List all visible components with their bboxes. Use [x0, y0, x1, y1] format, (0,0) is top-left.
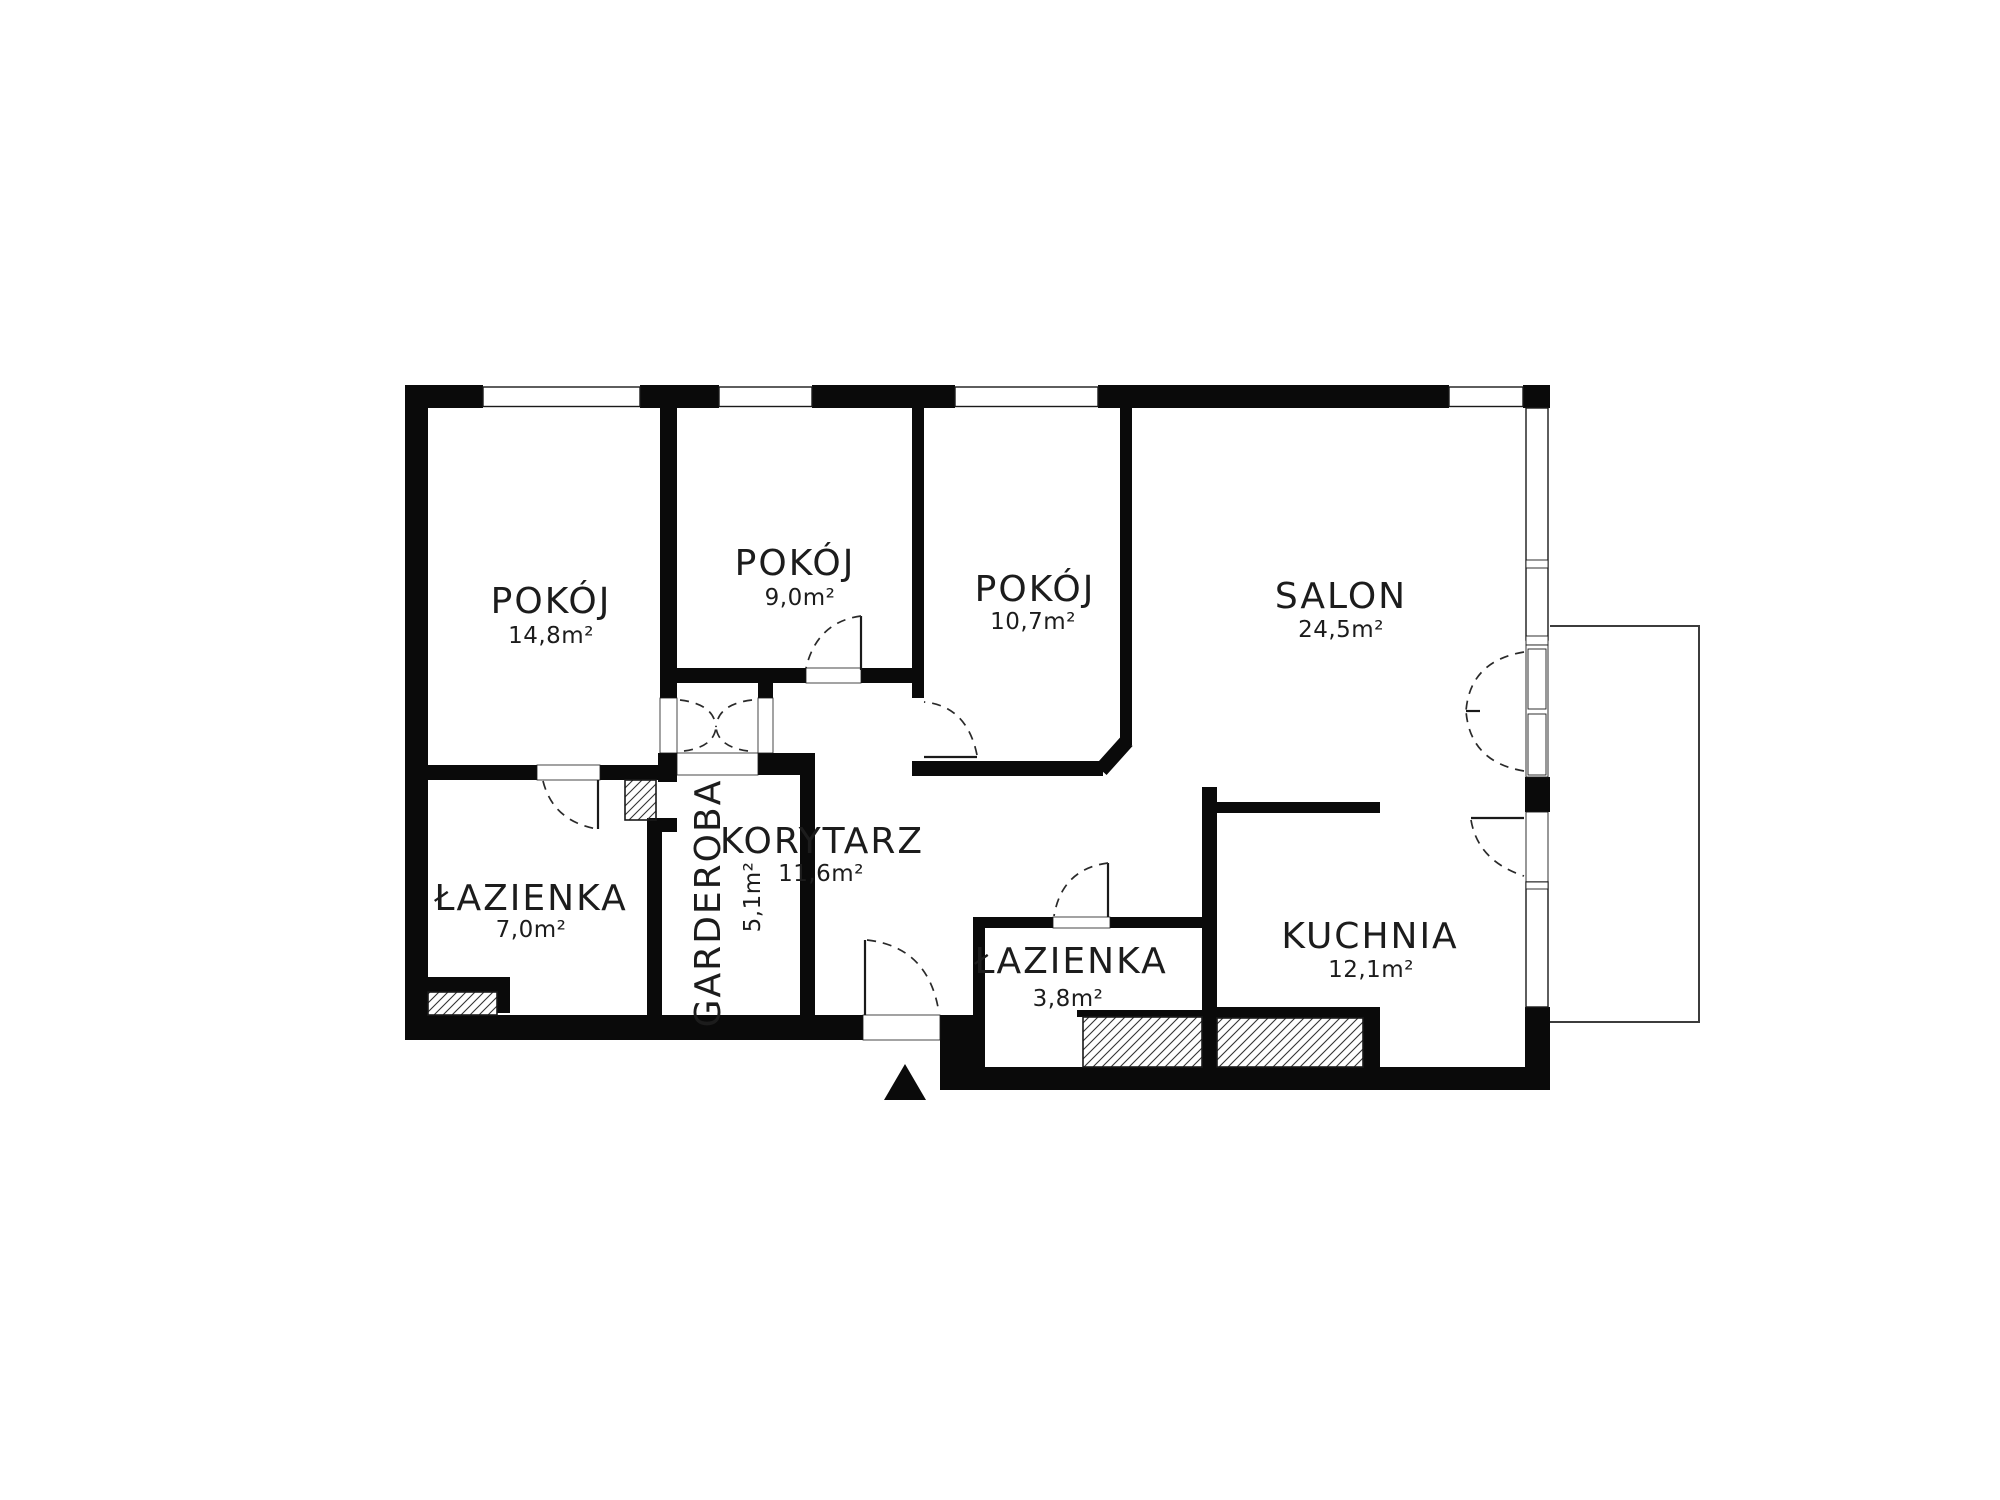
door-swing-bath1 [543, 781, 597, 829]
wall-p1-south [428, 765, 537, 780]
wall-right-top-corner [1525, 385, 1550, 408]
room-area-garderoba: 5,1m² [740, 862, 766, 933]
door-swing-garderoba [680, 700, 752, 751]
wall-corridor-north [912, 761, 1103, 776]
wall-right-pier [1525, 777, 1550, 812]
opening-entry [863, 1015, 940, 1040]
room-label-lazienka-2: ŁAZIENKA [973, 941, 1167, 982]
opening-garderoba [677, 753, 758, 775]
wall-p3-salon [1120, 408, 1132, 745]
wall-kitchen-north [1217, 802, 1380, 813]
wall-p2-p3 [912, 408, 924, 698]
window-kitchen [1526, 882, 1548, 1007]
wall-top-segment [640, 385, 719, 408]
room-area-korytarz: 11,6m² [778, 861, 864, 887]
wall-bath2-north [973, 917, 1053, 928]
balcony-outline [1550, 626, 1699, 1022]
wall-garderoba-west [647, 832, 662, 1015]
wall-p1-p2 [660, 408, 677, 698]
room-area-kuchnia: 12,1m² [1328, 957, 1414, 983]
wall-top-segment [812, 385, 955, 408]
wall-bottom-left [405, 1015, 863, 1040]
door-swing-bath2 [1054, 863, 1108, 916]
room-label-pokoj-1: POKÓJ [491, 580, 612, 622]
wall-right-bottom-corner [1525, 1007, 1550, 1090]
room-label-kuchnia: KUCHNIA [1281, 916, 1458, 957]
room-area-pokoj-2: 9,0m² [765, 585, 836, 611]
room-label-garderoba: GARDEROBA [688, 779, 729, 1028]
opening-bath2 [1053, 917, 1110, 928]
window-frame-bar [1526, 636, 1548, 645]
wall-diagonal [1101, 741, 1127, 770]
room-label-lazienka-1: ŁAZIENKA [433, 878, 627, 919]
room-labels: POKÓJ 14,8m² POKÓJ 9,0m² POKÓJ 10,7m² SA… [433, 542, 1458, 1027]
opening-bath1 [537, 765, 600, 780]
shaft-border [1363, 1007, 1380, 1067]
wall-bath2-north [1110, 917, 1202, 928]
room-label-korytarz: KORYTARZ [720, 821, 924, 862]
door-swing-p3 [924, 702, 977, 755]
opening-p1 [660, 698, 677, 753]
room-area-pokoj-1: 14,8m² [508, 623, 594, 649]
shaft-border [497, 977, 510, 1013]
room-area-lazienka-2: 3,8m² [1033, 986, 1104, 1012]
room-area-salon: 24,5m² [1298, 617, 1384, 643]
door-swing-entry [867, 940, 939, 1013]
wall-p2-south [660, 668, 806, 683]
room-label-pokoj-3: POKÓJ [975, 568, 1096, 610]
entrance-marker-icon [884, 1064, 926, 1100]
shaft-border [1210, 1007, 1380, 1018]
door-swing-p2 [806, 616, 861, 668]
wall-bath2-west [973, 917, 985, 1067]
window-frame-bar [1526, 882, 1548, 889]
floorplan-drawing: POKÓJ 14,8m² POKÓJ 9,0m² POKÓJ 10,7m² SA… [0, 0, 2000, 1500]
balcony-door-panel [1528, 714, 1546, 775]
window [1449, 387, 1523, 407]
wall-garderoba-jamb [658, 753, 677, 782]
windows-right [1526, 408, 1548, 1007]
room-label-salon: SALON [1275, 576, 1407, 617]
wall-p2-south [861, 668, 912, 683]
room-area-pokoj-3: 10,7m² [990, 609, 1076, 635]
shaft-garderoba [625, 780, 656, 820]
room-area-lazienka-1: 7,0m² [496, 917, 567, 943]
door-swing-balcony-kitchen [1471, 820, 1524, 876]
window-frame-bar [1526, 560, 1548, 568]
window-salon [1526, 408, 1548, 640]
room-label-pokoj-2: POKÓJ [735, 542, 856, 584]
shaft-bath2 [1083, 1017, 1202, 1067]
interior-walls [428, 408, 1380, 1067]
opening-vestibule [758, 698, 773, 753]
balcony-door-panel [1528, 649, 1546, 709]
wall-top-segment [1098, 385, 1449, 408]
wall-bottom-right [940, 1067, 1550, 1090]
window [483, 387, 640, 407]
window [955, 387, 1098, 407]
shaft-kitchen [1217, 1018, 1363, 1067]
wall-vestibule-jamb [758, 683, 773, 698]
shaft-bath1 [428, 992, 497, 1015]
kitchen-balcony-door-frame [1526, 812, 1548, 882]
opening-p2 [806, 668, 861, 683]
wall-p1-south [600, 765, 660, 780]
wall-left [405, 385, 428, 1040]
floorplan-page: POKÓJ 14,8m² POKÓJ 9,0m² POKÓJ 10,7m² SA… [0, 0, 2000, 1500]
wall-kitchen-west [1202, 787, 1217, 1067]
window [719, 387, 812, 407]
